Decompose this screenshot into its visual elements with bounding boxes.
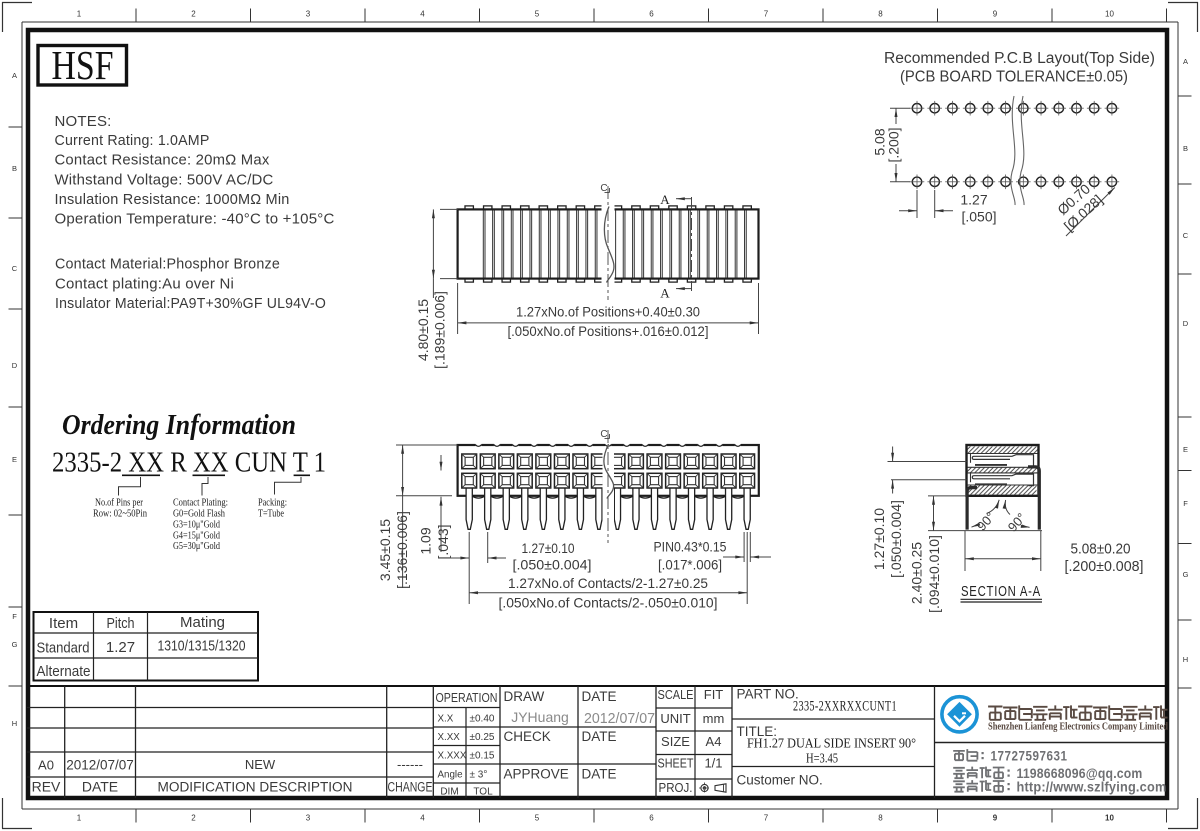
svg-text:B: B: [12, 164, 17, 173]
svg-text:Recommended P.C.B Layout(Top S: Recommended P.C.B Layout(Top Side): [884, 50, 1155, 67]
svg-text:No.of Pins per: No.of Pins per: [95, 498, 143, 509]
svg-text:Contact Material:Phosphor Bron: Contact Material:Phosphor Bronze: [55, 256, 280, 273]
svg-text:A4: A4: [706, 734, 722, 749]
svg-text:3: 3: [306, 814, 311, 823]
svg-text:[.043]: [.043]: [435, 524, 451, 559]
svg-text:[.050]: [.050]: [961, 209, 996, 225]
svg-text:4.80±0.15: 4.80±0.15: [415, 299, 431, 361]
svg-text:F: F: [1183, 499, 1188, 508]
svg-text:NEW: NEW: [245, 757, 276, 772]
svg-text:C: C: [12, 264, 18, 273]
svg-text:2: 2: [191, 814, 196, 823]
svg-text:[.050±0.004]: [.050±0.004]: [888, 500, 904, 578]
svg-text:OPERATION: OPERATION: [436, 690, 498, 705]
svg-text:1.27±0.10: 1.27±0.10: [522, 540, 575, 556]
svg-text:[.050±0.004]: [.050±0.004]: [513, 557, 592, 573]
svg-text:C: C: [1183, 231, 1189, 240]
svg-text:1.27: 1.27: [960, 192, 987, 208]
svg-text:Packing:: Packing:: [258, 498, 287, 509]
svg-text:G5=30μ"Gold: G5=30μ"Gold: [173, 541, 221, 552]
svg-text:7: 7: [764, 10, 769, 19]
svg-text:Mating: Mating: [180, 614, 225, 631]
svg-text:SHEET: SHEET: [658, 755, 694, 770]
svg-text:B: B: [1183, 144, 1188, 153]
svg-text:Shenzhen Lianfeng Electronics: Shenzhen Lianfeng Electronics Company Li…: [988, 722, 1168, 733]
svg-text:TOL: TOL: [473, 787, 493, 798]
svg-text:G: G: [12, 640, 18, 649]
svg-text:±0.40: ±0.40: [470, 714, 495, 725]
svg-text:SECTION A-A: SECTION A-A: [961, 583, 1041, 600]
svg-text:Item: Item: [49, 615, 78, 632]
svg-text:1/1: 1/1: [704, 755, 722, 770]
svg-text:2012/07/07: 2012/07/07: [66, 758, 134, 773]
svg-text:±0.15: ±0.15: [470, 751, 495, 762]
svg-text:Pitch: Pitch: [107, 615, 135, 632]
svg-text:A0: A0: [38, 758, 54, 773]
svg-text:------: ------: [397, 757, 423, 772]
svg-text:2335-2XXRXXCUNT1: 2335-2XXRXXCUNT1: [793, 699, 897, 715]
svg-text:CHECK: CHECK: [504, 729, 551, 744]
svg-text:Alternate: Alternate: [37, 663, 91, 680]
svg-text:1.27xNo.of Contacts/2-1.27±0.2: 1.27xNo.of Contacts/2-1.27±0.25: [508, 575, 708, 591]
svg-text:E: E: [12, 455, 17, 464]
svg-text:1.27±0.10: 1.27±0.10: [871, 508, 887, 570]
svg-text:2335-2 XX R XX CUN T 1: 2335-2 XX R XX CUN T 1: [52, 448, 326, 479]
svg-text:Row: 02~50Pin: Row: 02~50Pin: [93, 509, 148, 520]
svg-text:APPROVE: APPROVE: [504, 767, 569, 782]
svg-text:Insulation Resistance: 1000MΩ: Insulation Resistance: 1000MΩ Min: [55, 191, 290, 208]
svg-text:[.050xNo.of Contacts/2-.050±0.: [.050xNo.of Contacts/2-.050±0.010]: [499, 595, 718, 611]
svg-text:REV: REV: [32, 779, 61, 795]
svg-text:(PCB BOARD TOLERANCE±0.05): (PCB BOARD TOLERANCE±0.05): [900, 69, 1128, 86]
svg-text:JYHuang: JYHuang: [511, 709, 569, 725]
svg-text:9: 9: [993, 814, 998, 823]
svg-text:2.40±0.25: 2.40±0.25: [909, 542, 925, 604]
svg-text:Contact Resistance: 20mΩ Max: Contact Resistance: 20mΩ Max: [55, 152, 270, 169]
svg-text:D: D: [12, 361, 18, 370]
svg-text:4: 4: [420, 814, 425, 823]
svg-text:DRAW: DRAW: [504, 689, 545, 704]
svg-text:mm: mm: [703, 711, 725, 726]
svg-text:Operation Temperature: -40°C t: Operation Temperature: -40°C to +105°C: [55, 211, 335, 228]
svg-text:Current Rating: 1.0AMP: Current Rating: 1.0AMP: [55, 132, 210, 149]
svg-text:G4=15μ"Gold: G4=15μ"Gold: [173, 531, 221, 542]
svg-text:3: 3: [306, 10, 311, 19]
svg-text:H: H: [1183, 655, 1188, 664]
svg-text:H: H: [12, 719, 17, 728]
svg-text:8: 8: [878, 814, 883, 823]
svg-text:[.050xNo.of Positions+.016±0.0: [.050xNo.of Positions+.016±0.012]: [508, 323, 709, 339]
svg-text:A: A: [12, 71, 17, 80]
svg-text:[.189±0.006]: [.189±0.006]: [432, 291, 448, 369]
svg-text:D: D: [1183, 319, 1189, 328]
svg-text:3.45±0.15: 3.45±0.15: [377, 519, 393, 581]
svg-text:NOTES:: NOTES:: [55, 113, 112, 130]
svg-text:9: 9: [993, 10, 998, 19]
svg-text:[.200]: [.200]: [886, 127, 902, 162]
svg-text:1.27xNo.of Positions+0.40±0.30: 1.27xNo.of Positions+0.40±0.30: [516, 304, 700, 320]
svg-text:1.27: 1.27: [106, 639, 135, 656]
svg-text:DIM: DIM: [440, 787, 458, 798]
svg-text:DATE: DATE: [582, 729, 617, 744]
svg-text:X.XX: X.XX: [438, 732, 461, 743]
svg-text:5: 5: [535, 10, 540, 19]
svg-text:G3=10μ"Gold: G3=10μ"Gold: [173, 520, 221, 531]
svg-text:5.08±0.20: 5.08±0.20: [1071, 541, 1131, 558]
svg-text:Contact Plating:: Contact Plating:: [173, 498, 228, 509]
svg-text:Ordering Information: Ordering Information: [62, 409, 296, 441]
svg-text:5: 5: [535, 814, 540, 823]
svg-text:SCALE: SCALE: [658, 687, 694, 702]
svg-text:8: 8: [878, 10, 883, 19]
svg-text:1.09: 1.09: [418, 527, 434, 554]
svg-text:±0.25: ±0.25: [470, 732, 495, 743]
svg-text:G: G: [1183, 570, 1189, 579]
svg-text:F: F: [12, 612, 17, 621]
svg-text:10: 10: [1105, 814, 1114, 823]
svg-text:Withstand Voltage: 500V AC/DC: Withstand Voltage: 500V AC/DC: [55, 172, 274, 189]
svg-text:HSF: HSF: [52, 42, 114, 88]
svg-text:1: 1: [77, 10, 82, 19]
svg-text:Standard: Standard: [37, 640, 90, 657]
svg-text:PART NO.: PART NO.: [737, 687, 799, 702]
svg-text:MODIFICATION DESCRIPTION: MODIFICATION DESCRIPTION: [158, 780, 353, 795]
svg-text:CHANGE: CHANGE: [388, 780, 433, 795]
svg-text:Insulator Material:PA9T+30%GF: Insulator Material:PA9T+30%GF UL94V-O: [55, 295, 326, 312]
svg-text:FH1.27 DUAL SIDE INSERT 90°: FH1.27 DUAL SIDE INSERT 90°: [747, 737, 916, 752]
svg-text:Customer NO.: Customer NO.: [737, 773, 823, 788]
svg-text:17727597631: 17727597631: [991, 749, 1068, 764]
svg-text:± 3°: ± 3°: [470, 770, 488, 781]
svg-text:[.136±0.006]: [.136±0.006]: [394, 511, 410, 589]
svg-text:T=Tube: T=Tube: [258, 509, 284, 520]
svg-text:1: 1: [77, 814, 82, 823]
svg-text:X.X: X.X: [438, 714, 454, 725]
svg-text:4: 4: [420, 10, 425, 19]
svg-text:6: 6: [649, 814, 654, 823]
svg-text:[.017*.006]: [.017*.006]: [658, 557, 722, 573]
svg-text:G0=Gold Flash: G0=Gold Flash: [173, 509, 226, 520]
svg-text:[.094±0.010]: [.094±0.010]: [926, 535, 942, 613]
svg-text:Contact plating:Au over Ni: Contact plating:Au over Ni: [55, 276, 234, 293]
svg-text:A: A: [660, 286, 670, 301]
svg-text:7: 7: [764, 814, 769, 823]
svg-text:E: E: [1183, 445, 1188, 454]
svg-text:FIT: FIT: [704, 687, 724, 702]
svg-text:PIN0.43*0.15: PIN0.43*0.15: [654, 539, 727, 555]
svg-text:Angle: Angle: [438, 770, 464, 781]
svg-text:6: 6: [649, 10, 654, 19]
svg-text:2012/07/07: 2012/07/07: [584, 711, 655, 727]
svg-text:2: 2: [191, 10, 196, 19]
svg-text:PROJ.: PROJ.: [659, 780, 693, 795]
svg-text:http://www.szlfying.com: http://www.szlfying.com: [1017, 780, 1167, 795]
svg-text:DATE: DATE: [82, 779, 118, 795]
svg-text:1310/1315/1320: 1310/1315/1320: [158, 638, 246, 655]
svg-text:A: A: [660, 192, 670, 207]
svg-text:A: A: [1183, 57, 1188, 66]
svg-text:UNIT: UNIT: [660, 711, 690, 726]
svg-text:X.XXX: X.XXX: [438, 751, 467, 762]
svg-text:[.200±0.008]: [.200±0.008]: [1065, 558, 1144, 575]
svg-text:DATE: DATE: [582, 767, 617, 782]
svg-text:SIZE: SIZE: [661, 734, 690, 749]
svg-text:H=3.45: H=3.45: [806, 752, 838, 767]
svg-text:DATE: DATE: [582, 689, 617, 704]
svg-text:10: 10: [1105, 10, 1114, 19]
